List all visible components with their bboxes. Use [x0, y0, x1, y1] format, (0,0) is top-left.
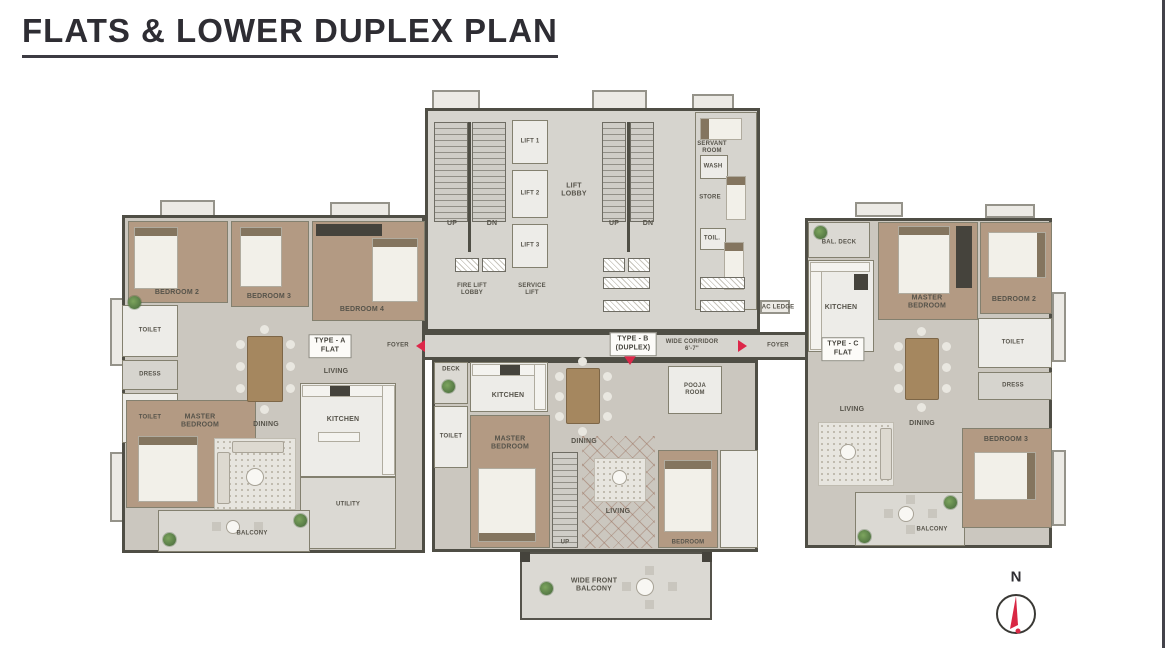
dining-chairs [603, 372, 612, 381]
plant [944, 496, 957, 509]
kitchen-label: KITCHEN [492, 392, 525, 400]
lift-2-label: LIFT 2 [521, 190, 540, 197]
foyer-c-label: FOYER [767, 342, 789, 349]
page-title: FLATS & LOWER DUPLEX PLAN [22, 12, 558, 58]
balcony-chairs [212, 522, 221, 531]
dining-table [247, 336, 283, 402]
duplex-stair [552, 452, 578, 548]
ac-ledge-label: AC LEDGE [762, 304, 795, 311]
kitchen-label: KITCHEN [825, 304, 858, 312]
dining-chair [260, 405, 269, 414]
staircase-right-flight [630, 122, 654, 222]
duct [603, 277, 650, 289]
bed [974, 452, 1036, 500]
dining-chair [917, 403, 926, 412]
entry-arrow-type-c-icon [738, 340, 747, 352]
balcony-chairs [884, 509, 893, 518]
stair-up-label: UP [609, 220, 619, 228]
stair-dn-label: DN [487, 220, 498, 228]
dining-table [905, 338, 939, 400]
deck-label: DECK [442, 366, 460, 373]
column [520, 552, 530, 562]
servant-bed [700, 118, 742, 140]
bedroom2-label: BEDROOM 2 [992, 296, 1036, 304]
bed [372, 238, 418, 302]
lift-lobby-label: LIFT LOBBY [561, 183, 587, 200]
wash-label: WASH [704, 163, 723, 170]
dining-chairs [236, 340, 245, 349]
dining-chair [917, 327, 926, 336]
plant [442, 380, 455, 393]
kitchen-label: KITCHEN [327, 416, 360, 424]
duct [628, 258, 650, 272]
balcony-label: BALCONY [916, 526, 947, 533]
dining-chair [578, 427, 587, 436]
service-lift-label: SERVICE LIFT [518, 283, 546, 297]
kitchen-counter [534, 364, 546, 410]
bedroom-label: BEDROOM [672, 539, 705, 546]
kitchen-counter [810, 262, 822, 350]
stair-divider-wall [468, 122, 471, 252]
staircase-left-flight [434, 122, 468, 222]
bed [898, 226, 950, 294]
coffee-table [246, 468, 264, 486]
type-a-flat-tag: TYPE - A FLAT [309, 334, 352, 358]
cooktop [330, 386, 350, 396]
dress-label: DRESS [1002, 382, 1024, 389]
stair-divider-wall [627, 122, 630, 252]
open-balcony [985, 204, 1035, 218]
entry-arrow-type-b-icon [624, 356, 636, 365]
coffee-table [612, 470, 627, 485]
master-bedroom-label: MASTER BEDROOM [908, 295, 946, 312]
bedroom4-label: BEDROOM 4 [340, 306, 384, 314]
sofa [232, 441, 284, 453]
bedroom2-label: BEDROOM 2 [155, 289, 199, 297]
toilet-label: TOILET [1002, 339, 1024, 346]
flat-a-utility [300, 477, 396, 549]
entry-arrow-type-a-icon [416, 340, 425, 352]
duct [482, 258, 506, 272]
living-label: LIVING [606, 508, 631, 516]
duct [603, 300, 650, 312]
sofa [217, 452, 230, 504]
servant-room-label: SERVANT ROOM [697, 141, 727, 155]
bed [478, 468, 536, 542]
balcony-table [898, 506, 914, 522]
kitchen-counter [382, 385, 395, 475]
toilet-label: TOILET [139, 414, 161, 421]
dining-label: DINING [253, 421, 279, 429]
plant [814, 226, 827, 239]
compass-icon [988, 586, 1046, 644]
stair-dn-label: DN [643, 220, 654, 228]
duct [455, 258, 479, 272]
duct [700, 300, 745, 312]
wide-corridor-label: WIDE CORRIDOR 6'-7" [666, 339, 719, 353]
store-label: STORE [699, 194, 721, 201]
living-label: LIVING [324, 368, 349, 376]
bed [134, 227, 178, 289]
balcony-chairs [622, 582, 631, 591]
lift-3-label: LIFT 3 [521, 242, 540, 249]
sofa [880, 428, 892, 480]
utility-label: UTILITY [336, 501, 360, 508]
dining-chair [578, 357, 587, 366]
wardrobe [316, 224, 382, 236]
bed [664, 460, 712, 532]
master-bedroom-label: MASTER BEDROOM [491, 436, 529, 453]
duct [603, 258, 625, 272]
bed [240, 227, 282, 287]
bedroom3-label: BEDROOM 3 [247, 293, 291, 301]
bed [138, 436, 198, 502]
plant [163, 533, 176, 546]
toilet-label: TOILET [440, 433, 462, 440]
bal-deck-label: BAL. DECK [822, 239, 856, 246]
open-balcony [1052, 292, 1066, 362]
bedroom3-label: BEDROOM 3 [984, 436, 1028, 444]
flat-b-toilet2 [720, 450, 758, 548]
plant [858, 530, 871, 543]
dining-chairs [286, 340, 295, 349]
dining-chairs [894, 342, 903, 351]
plant [128, 296, 141, 309]
master-bedroom-label: MASTER BEDROOM [181, 414, 219, 431]
fire-lift-lobby-label: FIRE LIFT LOBBY [457, 283, 487, 297]
open-balcony [592, 90, 647, 110]
coffee-table [840, 444, 856, 460]
store-bed [726, 176, 746, 220]
dining-label: DINING [909, 420, 935, 428]
kitchen-island [318, 432, 360, 442]
type-b-duplex-tag: TYPE - B (DUPLEX) [610, 332, 657, 356]
open-balcony [855, 202, 903, 217]
dining-label: DINING [571, 438, 597, 446]
column [702, 552, 712, 562]
fridge [854, 274, 868, 290]
bed [988, 232, 1046, 278]
front-balcony-label: WIDE FRONT BALCONY [571, 578, 617, 595]
lift-1-label: LIFT 1 [521, 138, 540, 145]
compass-north-label: N [1011, 569, 1022, 586]
staircase-right-flight [602, 122, 626, 222]
open-balcony [432, 90, 480, 110]
dining-chairs [942, 342, 951, 351]
pooja-room-label: POOJA ROOM [684, 383, 706, 397]
open-balcony [1052, 450, 1066, 526]
dining-chairs [555, 372, 564, 381]
plant [540, 582, 553, 595]
duct [700, 277, 745, 289]
stair-up-label: UP [561, 539, 570, 546]
toilet-label: TOIL. [704, 235, 720, 242]
living-label: LIVING [840, 406, 865, 414]
staircase-left-flight [472, 122, 506, 222]
kitchen-counter [810, 262, 870, 272]
plant [294, 514, 307, 527]
dining-chair [260, 325, 269, 334]
balcony-table [636, 578, 654, 596]
wardrobe [956, 226, 972, 288]
dining-table [566, 368, 600, 424]
balcony-label: BALCONY [236, 530, 267, 537]
foyer-a-label: FOYER [387, 342, 409, 349]
type-c-flat-tag: TYPE - C FLAT [821, 337, 864, 361]
stair-up-label: UP [447, 220, 457, 228]
cooktop [500, 365, 520, 375]
dress-label: DRESS [139, 371, 161, 378]
toilet-label: TOILET [139, 327, 161, 334]
